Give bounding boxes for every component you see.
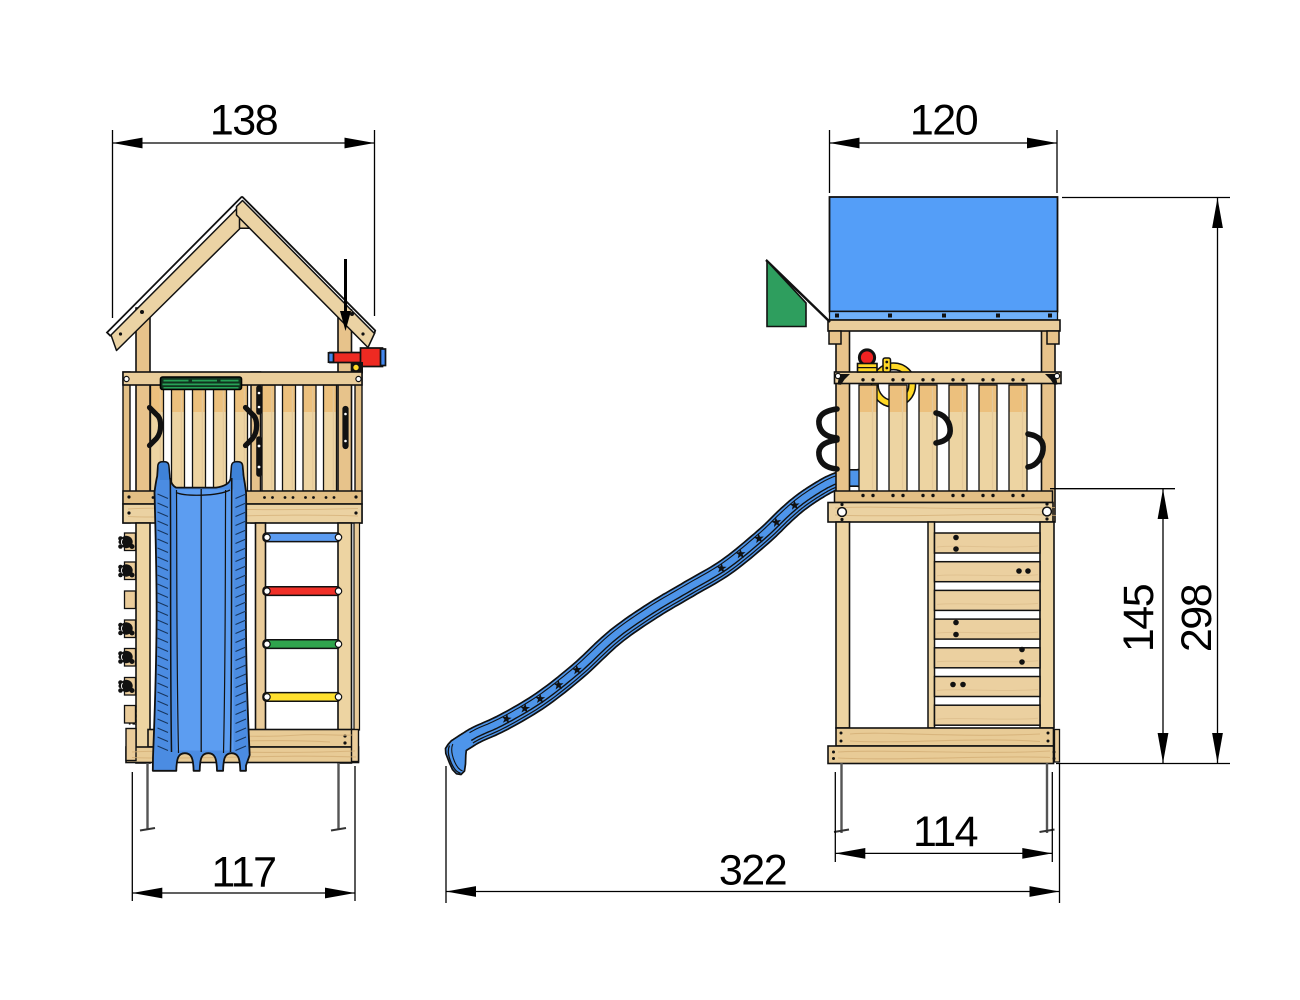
svg-text:322: 322 [719,847,786,895]
svg-text:298: 298 [1173,584,1221,652]
svg-text:138: 138 [210,97,278,145]
svg-text:145: 145 [1115,584,1163,652]
svg-text:114: 114 [913,808,978,856]
svg-text:117: 117 [211,849,275,897]
svg-text:120: 120 [910,97,978,145]
